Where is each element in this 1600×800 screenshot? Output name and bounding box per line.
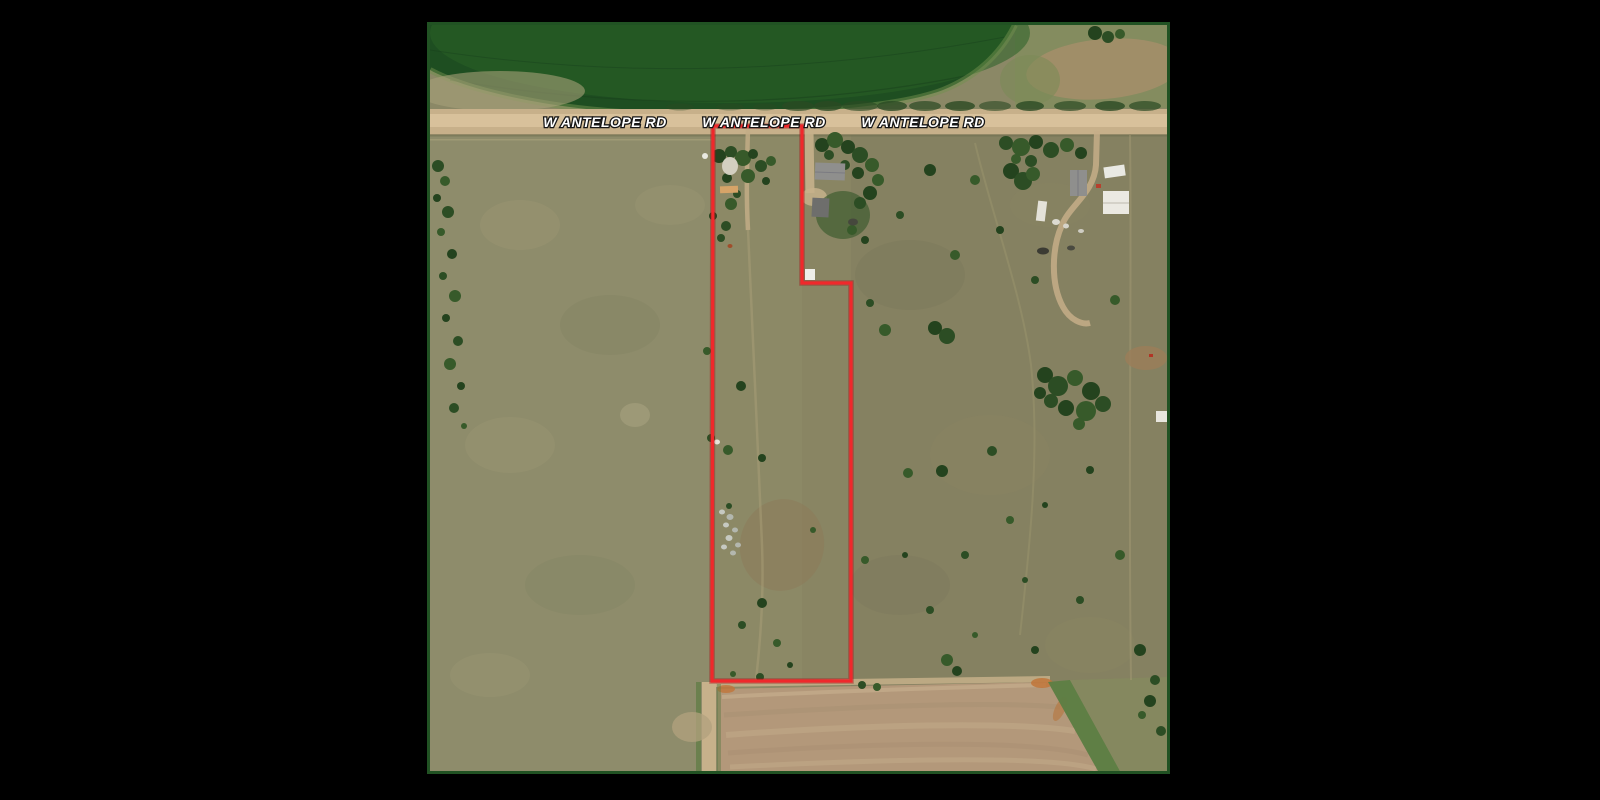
- tree-blob: [827, 132, 843, 148]
- tree-blob: [987, 446, 997, 456]
- tree-blob: [941, 654, 953, 666]
- tree-blob: [1144, 695, 1156, 707]
- tree-blob: [1110, 295, 1120, 305]
- tree-blob: [453, 336, 463, 346]
- tree-blob: [787, 662, 793, 668]
- tree-blob: [1012, 138, 1030, 156]
- white-object: [702, 153, 708, 159]
- tree-blob: [810, 527, 816, 533]
- tree-blob: [1006, 516, 1014, 524]
- tree-blob: [437, 228, 445, 236]
- faint-circle: [620, 403, 650, 427]
- tree-blob: [725, 198, 737, 210]
- road-brush: [782, 101, 814, 111]
- white-building: [1156, 411, 1167, 422]
- tree-blob: [1115, 29, 1125, 39]
- tree-blob: [442, 206, 454, 218]
- tree-blob: [896, 211, 904, 219]
- grass-mottle: [465, 417, 555, 473]
- road-labels: W ANTELOPE RD W ANTELOPE RD W ANTELOPE R…: [543, 114, 984, 130]
- grass-mottle: [450, 653, 530, 697]
- grass-mottle: [480, 200, 560, 250]
- tree-blob: [723, 445, 733, 455]
- screenshot-root: { "map": { "background": "#000000", "bor…: [0, 0, 1600, 800]
- track-green-edge: [717, 684, 721, 771]
- tree-blob: [1082, 382, 1100, 400]
- tree-blob: [866, 299, 874, 307]
- tree-blob: [852, 147, 868, 163]
- tree-blob: [461, 423, 467, 429]
- road-brush: [814, 101, 842, 111]
- white-object: [1052, 219, 1060, 225]
- tree-blob: [1029, 135, 1043, 149]
- dark-vehicle: [1037, 248, 1049, 255]
- tree-blob: [1115, 550, 1125, 560]
- debris: [721, 545, 727, 550]
- tree-blob: [999, 136, 1013, 150]
- tree-blob: [766, 156, 776, 166]
- tree-blob: [1134, 644, 1146, 656]
- tree-blob: [970, 175, 980, 185]
- road-label-east: W ANTELOPE RD: [861, 114, 984, 130]
- tree-blob: [440, 176, 450, 186]
- tree-blob: [1086, 466, 1094, 474]
- tree-blob: [824, 150, 834, 160]
- debris: [730, 551, 736, 556]
- tree-blob: [861, 556, 869, 564]
- road-brush: [909, 101, 941, 111]
- tree-blob: [741, 169, 755, 183]
- debris: [719, 510, 725, 515]
- road-south-edge: [430, 134, 1167, 137]
- tree-blob: [432, 160, 444, 172]
- tree-blob: [861, 236, 869, 244]
- road-brush: [877, 101, 907, 111]
- tree-blob: [1060, 138, 1074, 152]
- animal: [728, 244, 733, 248]
- tree-blob: [924, 164, 936, 176]
- road-brush: [1054, 101, 1086, 111]
- tree-blob: [447, 249, 457, 259]
- dirt-patch: [1125, 346, 1167, 370]
- tree-blob: [852, 167, 864, 179]
- shed-roof: [811, 198, 829, 218]
- tree-blob: [1088, 26, 1102, 40]
- tree-blob: [730, 671, 736, 677]
- road-brush: [1129, 101, 1161, 111]
- debris: [732, 528, 738, 533]
- tree-blob: [815, 138, 829, 152]
- tree-blob: [773, 639, 781, 647]
- tree-blob: [961, 551, 969, 559]
- house-roof: [815, 162, 846, 180]
- tree-blob: [847, 225, 857, 235]
- tree-blob: [952, 666, 962, 676]
- road-brush: [979, 101, 1011, 111]
- tree-blob: [721, 221, 731, 231]
- tree-blob: [1075, 147, 1087, 159]
- tree-blob: [950, 250, 960, 260]
- road-brush: [945, 101, 975, 111]
- tree-blob: [736, 381, 746, 391]
- road-brush: [1095, 101, 1125, 111]
- tree-blob: [936, 465, 948, 477]
- tree-blob: [1156, 726, 1166, 736]
- tree-blob: [1067, 370, 1083, 386]
- tree-blob: [879, 324, 891, 336]
- road-brush: [666, 104, 694, 111]
- tree-blob: [1095, 396, 1111, 412]
- tree-blob: [757, 598, 767, 608]
- tree-blob: [748, 149, 758, 159]
- tree-blob: [1150, 675, 1160, 685]
- road-brush: [753, 104, 777, 111]
- tree-blob: [1138, 711, 1146, 719]
- debris: [726, 535, 733, 541]
- debris: [723, 523, 729, 528]
- bare-ground: [722, 157, 738, 175]
- tree-blob: [1026, 167, 1040, 181]
- white-object: [1063, 224, 1069, 229]
- tree-blob: [1048, 376, 1068, 396]
- tree-blob: [433, 194, 441, 202]
- red-vehicle: [1096, 184, 1101, 188]
- tree-blob: [738, 621, 746, 629]
- right-trail: [1130, 135, 1131, 680]
- tree-blob: [1042, 502, 1048, 508]
- tree-blob: [1043, 142, 1059, 158]
- red-object: [1149, 354, 1153, 357]
- tree-blob: [902, 552, 908, 558]
- fence-line: [430, 139, 713, 141]
- road-label-center: W ANTELOPE RD: [702, 114, 825, 130]
- tree-blob: [1031, 276, 1039, 284]
- road-brush: [1016, 101, 1044, 111]
- dark-vehicle: [1067, 246, 1075, 251]
- tree-blob: [1044, 394, 1058, 408]
- dark-object: [848, 219, 858, 226]
- tree-blob: [1031, 646, 1039, 654]
- tan-building: [720, 186, 738, 194]
- tree-blob: [865, 158, 879, 172]
- road-brush: [842, 101, 878, 111]
- tree-blob: [1076, 596, 1084, 604]
- debris: [735, 543, 741, 548]
- tree-blob: [1022, 577, 1028, 583]
- tree-blob: [1058, 400, 1074, 416]
- tree-blob: [1073, 418, 1085, 430]
- tree-blob: [725, 146, 737, 158]
- road-label-west: W ANTELOPE RD: [543, 114, 666, 130]
- tree-blob: [1025, 155, 1037, 167]
- tree-blob: [717, 234, 725, 242]
- grass-mottle: [560, 295, 660, 355]
- tree-blob: [972, 632, 978, 638]
- tree-blob: [872, 174, 884, 186]
- tree-blob: [726, 503, 732, 509]
- aerial-map-image: W ANTELOPE RD W ANTELOPE RD W ANTELOPE R…: [427, 22, 1170, 774]
- tree-blob: [996, 226, 1004, 234]
- tree-blob: [863, 186, 877, 200]
- tree-blob: [762, 177, 770, 185]
- white-shed: [805, 269, 815, 280]
- tree-blob: [854, 197, 866, 209]
- tan-patch: [672, 712, 712, 742]
- tree-blob: [926, 606, 934, 614]
- tree-blob: [1102, 31, 1114, 43]
- grass-mottle: [525, 555, 635, 615]
- tree-blob: [873, 683, 881, 691]
- road-brush: [716, 104, 744, 111]
- grass-mottle: [635, 185, 705, 225]
- tree-blob: [457, 382, 465, 390]
- map-canvas: W ANTELOPE RD W ANTELOPE RD W ANTELOPE R…: [430, 25, 1167, 771]
- tree-blob: [1034, 387, 1046, 399]
- neighbor-driveway: [809, 131, 810, 193]
- ne-green-streak: [1000, 55, 1060, 105]
- tree-blob: [1011, 154, 1021, 164]
- tree-blob: [442, 314, 450, 322]
- tree-blob: [449, 290, 461, 302]
- grass-mottle: [1045, 617, 1135, 673]
- white-object: [1078, 229, 1084, 233]
- debris: [727, 514, 734, 520]
- tree-blob: [439, 272, 447, 280]
- tree-blob: [939, 328, 955, 344]
- tree-blob: [755, 160, 767, 172]
- tree-blob: [444, 358, 456, 370]
- tree-blob: [858, 681, 866, 689]
- tree-blob: [903, 468, 913, 478]
- tree-blob: [758, 454, 766, 462]
- tree-blob: [449, 403, 459, 413]
